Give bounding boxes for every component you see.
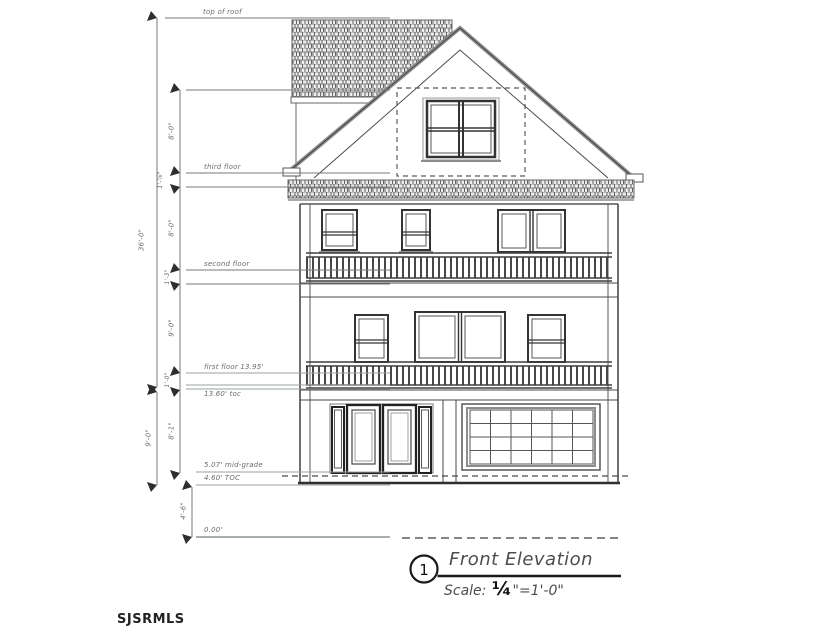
scale-label: Scale:: [444, 583, 486, 599]
level-label-second-floor: second floor: [204, 261, 249, 268]
dim-first-floor-band: 1'-0": [165, 372, 171, 387]
dim-attic-to-third: 8'-0": [169, 122, 176, 140]
dim-second-floor-band: 1'-3": [165, 269, 171, 284]
elevation-drawing: [0, 0, 840, 630]
dim-overall-height: 36'-0": [139, 229, 146, 251]
second-floor-window-right: [528, 315, 565, 362]
second-floor-window-left: [355, 315, 388, 362]
dim-second-to-first: 9'-0": [169, 319, 176, 337]
house-linework: [282, 20, 643, 483]
drawing-number: 1: [412, 561, 436, 579]
eave-shingle-band: [288, 180, 634, 204]
level-label-first-floor: first floor 13.95': [204, 364, 264, 371]
second-floor-double-door: [415, 312, 505, 362]
dim-toc-to-datum: 4'-6": [181, 502, 188, 520]
level-label-third-floor: third floor: [204, 164, 241, 171]
level-label-top-of-roof: top of roof: [203, 9, 242, 16]
drawing-title: Front Elevation: [449, 549, 593, 570]
drawing-scale: Scale: ¼"=1'-0": [444, 578, 564, 600]
level-label-toc-upper: 13.60' toc: [204, 391, 241, 398]
third-floor-window-center: [399, 210, 433, 252]
dim-toc-to-toc: 9'-0": [146, 429, 153, 447]
third-floor-double-door: [498, 210, 565, 252]
dim-third-to-second: 8'-0": [169, 219, 176, 237]
third-floor-railing: [306, 253, 612, 281]
attic-window: [421, 98, 501, 161]
level-label-mid-grade: 5.07' mid-grade: [204, 462, 263, 469]
garage-door: [462, 404, 600, 470]
grade-lines: [282, 476, 628, 483]
watermark-text: SJSRMLS: [117, 612, 185, 627]
level-label-toc-lower: 4.60' TOC: [204, 475, 240, 482]
elevation-sheet: top of roof third floor second floor fir…: [0, 0, 840, 630]
level-label-datum: 0.00': [204, 527, 223, 534]
dim-third-floor-band: 1'-⅞": [158, 171, 164, 188]
second-floor-railing: [306, 362, 612, 388]
scale-fraction: ¼: [491, 578, 513, 600]
scale-rest: "=1'-0": [513, 583, 564, 599]
dim-first-to-grade: 8'-1": [169, 422, 176, 440]
entry-door-assembly: [330, 404, 433, 473]
third-floor-window-left: [319, 210, 360, 252]
